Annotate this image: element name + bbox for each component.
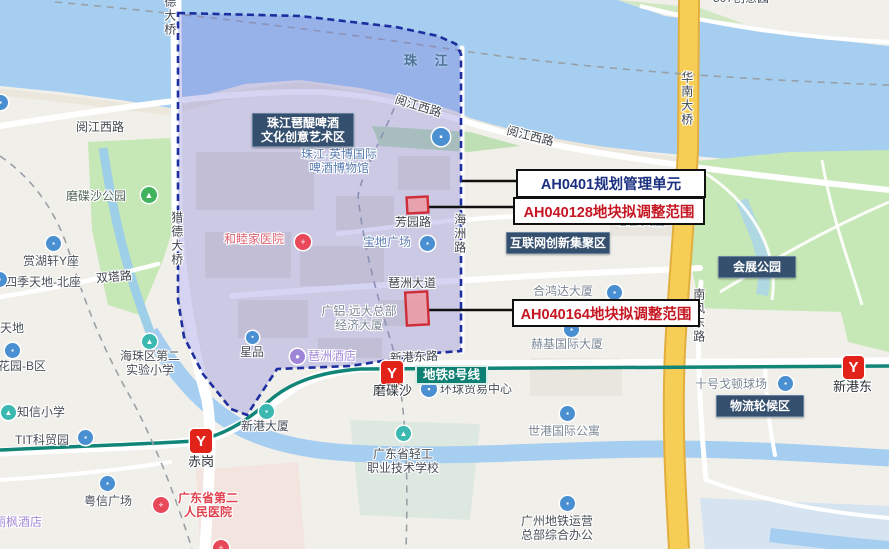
callout-ah0401: AH0401规划管理单元 [516, 169, 706, 198]
poi-hospital-partial-icon: + [213, 540, 229, 549]
exhibition-park-area [686, 150, 889, 312]
station-chigang-name[interactable]: 赤岗 [188, 455, 214, 470]
station-modiesha-logo[interactable]: Y [381, 361, 403, 385]
poi-507-partial[interactable]: 507创意园 [713, 0, 769, 6]
bridge-huanan: 华南大桥 [679, 71, 693, 127]
station-xingangdong-logo[interactable]: Y [843, 356, 864, 379]
label-line: 啤酒博物馆 [298, 162, 380, 176]
label-line: 物流轮候区 [730, 399, 790, 413]
label-line: 会展公园 [733, 260, 781, 274]
poi-pazhou-hotel-icon: ● [290, 349, 305, 364]
label-line: 总部综合办公 [512, 529, 602, 543]
poi-yuexin-plaza-icon: ▪ [100, 476, 115, 491]
poi-zhixin-school-icon: ▲ [1, 405, 16, 420]
poi-gordon-court[interactable]: 十号戈顿球场 [695, 378, 767, 392]
poi-zhixin-school[interactable]: 知信小学 [17, 406, 65, 420]
poi-haizhu-school[interactable]: 海珠区第二实验小学 [112, 350, 188, 378]
region-label-pati[interactable]: 珠江琶醍啤酒文化创意艺术区 [252, 113, 354, 147]
label-line: 广铝,远大总部 [312, 305, 406, 319]
poi-beer-museum[interactable]: 珠江-英博国际啤酒博物馆 [298, 148, 380, 176]
region-label-exhibition-park[interactable]: 会展公园 [718, 256, 796, 278]
road-haizhou: 海洲路 [452, 213, 466, 255]
poi-shigang-apartment-icon: ▪ [560, 406, 575, 421]
poi-beer-museum-icon: ▪ [432, 128, 450, 146]
poi-pazhou-hotel[interactable]: 琶洲酒店 [308, 350, 356, 364]
poi-shanghuxuan-icon: ▪ [46, 236, 61, 251]
water-zhujiang: 珠 江 [404, 54, 455, 69]
poi-qinggong-college[interactable]: 广东省轻工职业技术学校 [356, 448, 450, 476]
label-line: 职业技术学校 [356, 462, 450, 476]
poi-shigang-apartment[interactable]: 世港国际公寓 [528, 425, 600, 439]
poi-modiesha-park-icon: ▲ [141, 187, 157, 203]
poi-huayuan-b-icon: ▪ [5, 343, 20, 358]
station-modiesha-name[interactable]: 磨碟沙 [373, 384, 412, 399]
poi-gd2-hospital[interactable]: 广东省第二人民医院 [168, 492, 248, 520]
poi-gordon-court-icon: ▪ [778, 376, 793, 391]
poi-xingang-tower-icon: ▪ [259, 404, 274, 419]
poi-qinggong-college-icon: ▲ [396, 426, 411, 441]
poi-baodi-plaza[interactable]: 宝地广场 [363, 236, 411, 250]
map-canvas[interactable]: 阅江西路阅江西路阅江西路双塔路芳园路琶洲大道新港东路海洲路华南大桥南风东路猎德大… [0, 0, 889, 549]
label-line: 广东省第二 [168, 492, 248, 506]
region-label-internet[interactable]: 互联网创新集聚区 [506, 232, 610, 254]
poi-xingpin[interactable]: 星品 [240, 346, 264, 360]
poi-huanqiu-trade[interactable]: 环球贸易中心 [440, 383, 512, 397]
poi-lifeng-hotel[interactable]: 丽枫酒店 [0, 516, 42, 530]
region-label-logistics[interactable]: 物流轮候区 [716, 395, 804, 417]
label-line: 实验小学 [112, 364, 188, 378]
poi-guanglv-hq[interactable]: 广铝,远大总部经济大厦 [312, 305, 406, 333]
poi-tit-park-icon: ▪ [78, 430, 93, 445]
label-line: 珠江-英博国际 [298, 148, 380, 162]
poi-united-hospital-icon: + [295, 234, 311, 250]
station-xingangdong-name[interactable]: 新港东 [833, 380, 872, 395]
label-line: 广州地铁运营 [512, 515, 602, 529]
metro-line8-label: 地铁8号线 [415, 365, 488, 385]
callout-ah040128: AH040128地块拟调整范围 [513, 197, 705, 225]
callout-ah040164: AH040164地块拟调整范围 [512, 299, 700, 327]
poi-hehongda[interactable]: 合鸿达大厦 [533, 285, 593, 299]
bridge-liede-top: 猎德大桥 [162, 0, 176, 37]
road-pazhou-avenue: 琶洲大道 [388, 277, 436, 291]
poi-heji-tower[interactable]: 赫基国际大厦 [531, 338, 603, 352]
poi-hehongda-icon: ▪ [607, 285, 622, 300]
poi-gzmetro-hq-icon: ▪ [560, 496, 575, 511]
label-line: 广东省轻工 [356, 448, 450, 462]
label-line: 文化创意艺术区 [261, 130, 345, 144]
poi-xingpin-icon: ▪ [246, 331, 259, 344]
label-line: 经济大厦 [312, 319, 406, 333]
poi-tit-park[interactable]: TIT科贸园 [15, 434, 69, 448]
poi-sijitiandi[interactable]: 四季天地-北座 [5, 276, 81, 290]
label-line: 互联网创新集聚区 [510, 236, 606, 250]
poi-yuexin-plaza[interactable]: 粤信广场 [84, 495, 132, 509]
poi-baodi-plaza-icon: ▪ [420, 236, 435, 251]
label-line: 珠江琶醍啤酒 [267, 116, 339, 130]
poi-modiesha-park[interactable]: 磨碟沙公园 [66, 190, 126, 204]
bridge-liede: 猎德大桥 [169, 211, 183, 267]
label-line: 海珠区第二 [112, 350, 188, 364]
label-line: 人民医院 [168, 506, 248, 520]
poi-united-hospital[interactable]: 和睦家医院 [224, 233, 284, 247]
station-chigang-logo[interactable]: Y [190, 429, 212, 453]
poi-haizhu-school-icon: ▲ [142, 334, 157, 349]
poi-gzmetro-hq[interactable]: 广州地铁运营总部综合办公 [512, 515, 602, 543]
poi-xingang-tower[interactable]: 新港大厦 [241, 420, 289, 434]
poi-gd2-hospital-icon: + [153, 497, 169, 513]
poi-shanghuxuan[interactable]: 赏湖轩Y座 [23, 255, 79, 269]
poi-huayuan-b[interactable]: 花园-B区 [0, 360, 46, 374]
road-yuejiangxi-left: 阅江西路 [76, 121, 124, 135]
road-fangyuan: 芳园路 [395, 216, 431, 230]
poi-tiandi-partial[interactable]: 天地 [0, 322, 24, 336]
